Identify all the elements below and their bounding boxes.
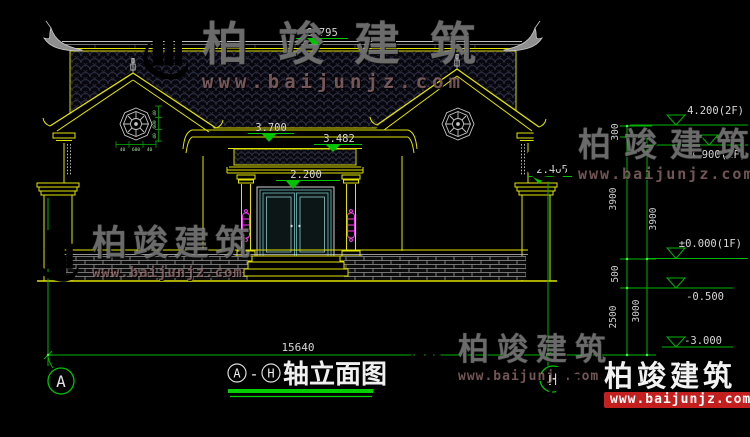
ladder-level-neg0500: -0.500 [686, 291, 724, 303]
left-eave-ornament [44, 21, 82, 51]
drawing-title: A - H 轴立面图 [228, 359, 387, 397]
level-side-wall: 2.465 [536, 164, 568, 176]
win-dim-v2: 600 [152, 120, 158, 129]
door-handle-right [298, 225, 300, 227]
left-bagua-window [120, 108, 152, 140]
base-plinth [37, 250, 557, 281]
axis-bubble-right: H [548, 370, 558, 389]
elevation-drawing-canvas: 40 600 40 40 600 40 [0, 0, 750, 437]
ladder-seg-3000: 3000 [631, 299, 642, 322]
title-underline-thick [228, 389, 373, 393]
ladder-level-neg3000: -3.000 [684, 335, 722, 347]
ladder-level-3900: 3.900(2F) [689, 149, 746, 161]
overall-width-dim: 15640 [281, 341, 314, 354]
right-eave-ornament [504, 21, 542, 51]
level-door-head: 2.200 [290, 169, 322, 181]
left-wing-wall [53, 133, 75, 183]
ladder-seg-3900-left: 3900 [608, 187, 619, 210]
ladder-level-4200: 4.200(2F) [687, 105, 744, 117]
ridge-tile-ticks [95, 45, 475, 48]
entry-steps [244, 256, 348, 276]
level-ridge: 6.795 [306, 27, 338, 39]
right-wall-drain-strip [522, 144, 525, 176]
win-dim-w2: 600 [132, 147, 141, 153]
right-bagua-window [442, 108, 474, 140]
ladder-seg-500: 500 [610, 265, 621, 282]
door-leaf-left [263, 193, 295, 256]
win-dim-w3: 40 [147, 147, 153, 153]
win-dim-v3: 40 [152, 133, 158, 139]
ladder-seg-3900-right: 3900 [648, 207, 659, 230]
elevation-ladder: 4.200(2F) 3.900(2F) ±0.000(1F) -0.500 -3… [548, 105, 748, 356]
brick-band-left [66, 256, 248, 280]
ladder-seg-2500: 2500 [608, 305, 619, 328]
ladder-seg-300: 300 [610, 123, 621, 140]
axis-bubble-left: A [56, 372, 66, 391]
brick-band-right [344, 256, 526, 280]
title-axis-start: A [233, 367, 241, 381]
win-dim-w1: 40 [120, 147, 126, 153]
left-wall-drain-strip [68, 144, 71, 176]
title-name: 轴立面图 [283, 359, 387, 390]
title-separator: - [249, 365, 258, 383]
ladder-level-0000: ±0.000(1F) [679, 238, 742, 250]
win-dim-v1: 40 [152, 110, 158, 116]
level-main-eave: 3.700 [255, 122, 287, 134]
level-canopy: 3.482 [323, 133, 355, 145]
door-handle-left [290, 225, 292, 227]
title-axis-end: H [267, 367, 274, 381]
door-leaf-right [297, 193, 329, 256]
cad-elevation-screenshot: 40 600 40 40 600 40 [0, 0, 750, 437]
